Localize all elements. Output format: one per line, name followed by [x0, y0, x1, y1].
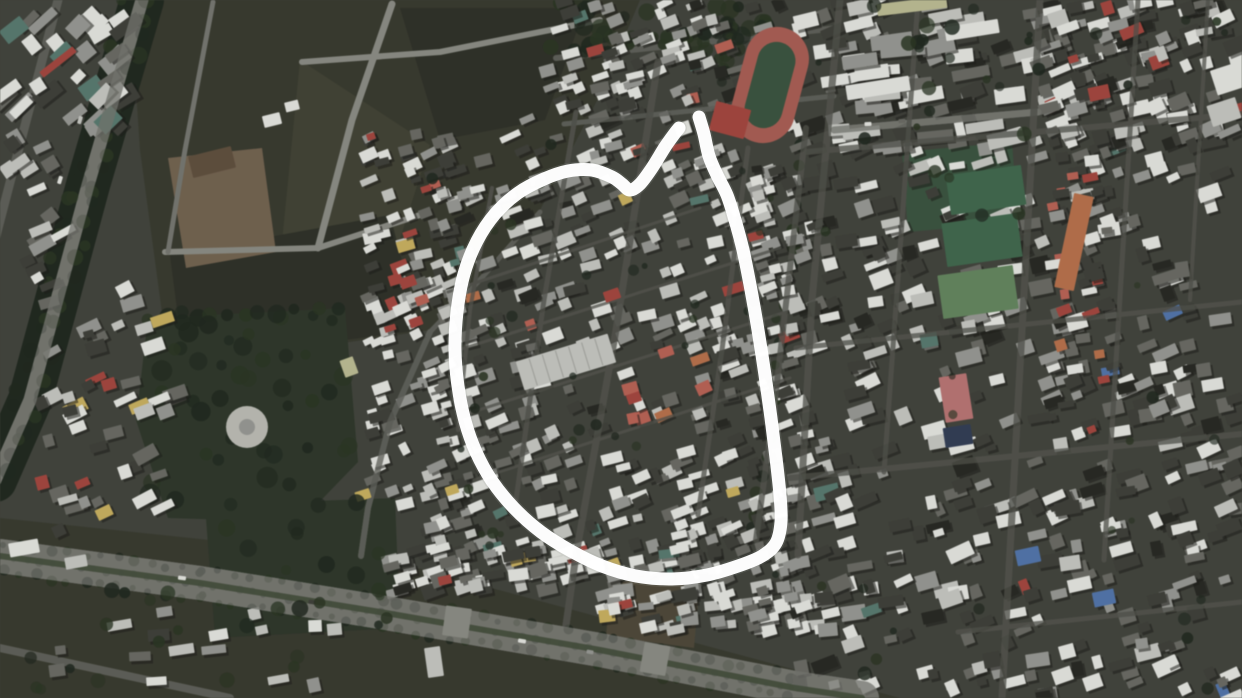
hand-drawn-loop-annotation [0, 0, 1242, 698]
satellite-map [0, 0, 1242, 698]
